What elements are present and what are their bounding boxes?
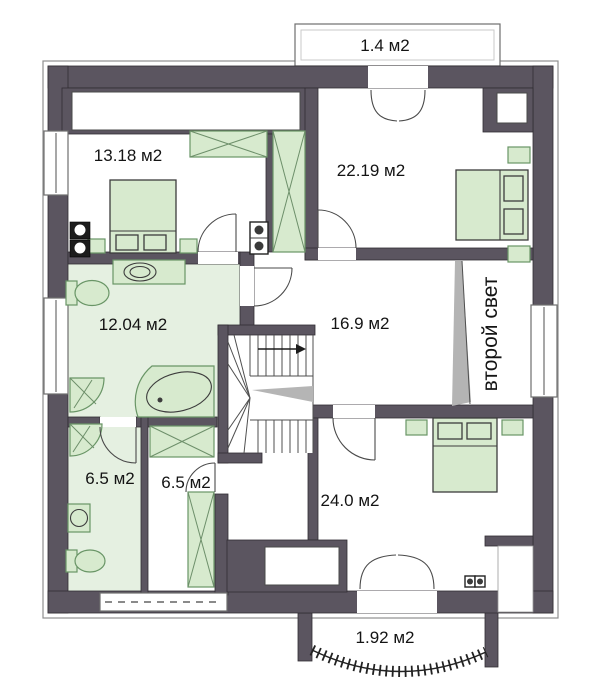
label-bathroom: 12.04 м2	[99, 315, 167, 334]
wardrobe-central	[273, 131, 305, 252]
nightstand-bedroom1-right	[180, 239, 197, 253]
wall-dressing-corridor	[215, 494, 228, 595]
door-gap-hall-bedroom3	[333, 405, 375, 418]
bed-bedroom2	[456, 170, 528, 240]
wall-wc-dressing	[141, 417, 148, 595]
vent-shaft-icon	[250, 222, 268, 254]
french-door-balcony-bottom	[360, 555, 434, 589]
label-balcony-top: 1.4 м2	[360, 36, 410, 55]
label-bedroom-top-right: 22.19 м2	[337, 161, 405, 180]
window-bottom	[100, 593, 227, 611]
bed-bedroom1	[110, 180, 176, 253]
door-gap-balcony-top	[368, 66, 428, 88]
wall-top	[48, 66, 553, 88]
label-hall: 16.9 м2	[331, 314, 390, 333]
door-gap-bathroom-bedroom1	[198, 252, 238, 264]
dormer-top-window	[72, 92, 300, 130]
sink-counter	[113, 260, 185, 284]
door-gap-bathroom-hall	[240, 266, 254, 306]
nightstand-bedroom2-bottom	[508, 246, 530, 262]
nightstand-bedroom3-right	[502, 420, 523, 435]
door-hall-bedroom2	[318, 210, 356, 248]
window-right	[531, 305, 557, 397]
label-wc: 6.5 м2	[85, 469, 135, 488]
window-left-upper	[44, 131, 68, 195]
label-bedroom-top-left: 13.18 м2	[94, 146, 162, 165]
wardrobe-dressing-right	[188, 492, 214, 587]
vent-icon-bottom	[465, 576, 485, 587]
label-dressing: 6.5 м2	[161, 473, 211, 492]
void-railing	[452, 261, 471, 406]
door-gap-hall-bedroom2	[318, 248, 356, 260]
wardrobe-bedroom1	[190, 131, 267, 157]
staircase	[218, 325, 315, 463]
label-balcony-bottom: 1.92 м2	[356, 628, 415, 647]
nightstand-bedroom3-left	[406, 420, 427, 435]
toilet-bathroom	[66, 281, 109, 306]
label-bedroom-bottom: 24.0 м2	[321, 491, 380, 510]
door-gap-balcony-bottom	[357, 591, 437, 613]
balcony-bottom-wall-left	[298, 613, 312, 661]
toilet-wc	[66, 550, 105, 572]
wall-closet-bedroom2	[305, 88, 318, 260]
washer-dryer-icon	[70, 222, 90, 257]
wall-notch	[498, 546, 533, 612]
chimney-flue	[497, 93, 527, 123]
door-hall-bedroom3	[333, 418, 375, 460]
corner-bathtub	[135, 366, 215, 419]
wardrobe-dressing-top	[150, 426, 214, 457]
door-gap-bathroom-wc	[100, 417, 136, 427]
sink-wc	[68, 504, 90, 532]
nightstand-bedroom1-left	[88, 239, 105, 253]
window-left-lower	[44, 298, 68, 394]
floor-plan: 1.4 м2 13.18 м2 22.19 м2 12.04 м2 16.9 м…	[0, 0, 600, 700]
wall-step-right	[485, 536, 533, 546]
balcony-bottom-railing	[312, 650, 486, 672]
nightstand-bedroom2-top	[508, 147, 530, 163]
floor-plan-canvas: 1.4 м2 13.18 м2 22.19 м2 12.04 м2 16.9 м…	[0, 0, 600, 700]
bed-bedroom3	[433, 418, 497, 492]
label-void: второй свет	[479, 276, 502, 391]
door-bathroom-bedroom1	[198, 214, 236, 252]
dormer-bottom-window	[265, 547, 339, 585]
door-bathroom-hall	[254, 268, 292, 306]
french-door-balcony-top	[371, 90, 425, 121]
